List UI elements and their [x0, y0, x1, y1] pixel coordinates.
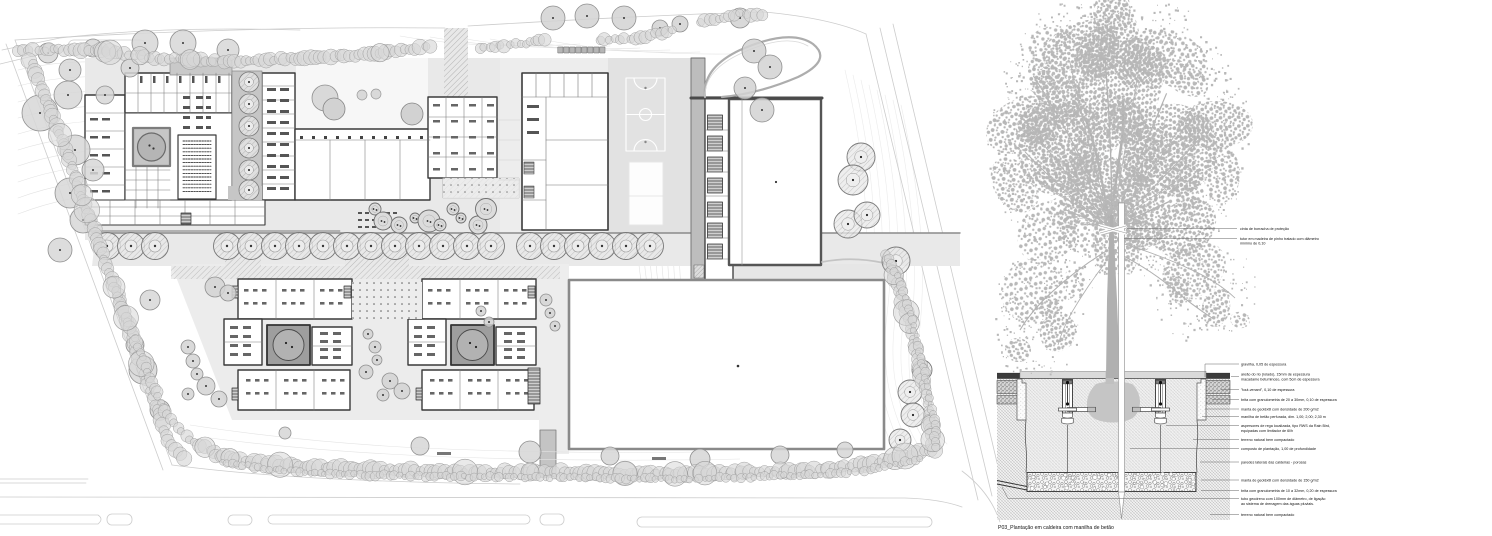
svg-text:gravilha, 0,05 de espessura: gravilha, 0,05 de espessura: [1241, 362, 1287, 366]
svg-text:brita com granulometria de 20: brita com granulometria de 20 a 30mm, 0,…: [1241, 398, 1338, 402]
svg-text:tutor em madeira de pinho trat: tutor em madeira de pinho tratado com di…: [1240, 237, 1319, 241]
svg-text:paredes laterais das caldeiras: paredes laterais das caldeiras - porosas: [1241, 460, 1307, 464]
svg-text:brita com granulometria de 10: brita com granulometria de 10 a 32mm, 0,…: [1241, 489, 1338, 493]
svg-text:ao sistema de drenagem das águ: ao sistema de drenagem das águas pluviai…: [1241, 502, 1314, 506]
svg-text:equipadas com limitador de 6l/: equipadas com limitador de 6l/h: [1241, 429, 1293, 433]
svg-text:manta de geotêxtil com densida: manta de geotêxtil com densidade de 200 …: [1241, 407, 1319, 411]
svg-text:composto de plantação, 1,00 de: composto de plantação, 1,00 de profundid…: [1241, 447, 1316, 451]
svg-text:macadame betuminoso, com 5cm d: macadame betuminoso, com 5cm de espessur…: [1241, 377, 1320, 381]
svg-text:aspersores de rega localizada,: aspersores de rega localizada, tipo RWS …: [1241, 424, 1330, 428]
svg-text:manta de geotêxtil com densida: manta de geotêxtil com densidade de 150 …: [1241, 478, 1319, 482]
svg-text:manilha de betão perfurada, di: manilha de betão perfurada, dim. 1,00; 2…: [1241, 415, 1326, 419]
svg-text:areão do rio (rolado), 15mm de: areão do rio (rolado), 15mm de espessura: [1241, 373, 1311, 377]
svg-text:"tout-venant", 0,10 de espessu: "tout-venant", 0,10 de espessura: [1241, 388, 1295, 392]
svg-text:mínimo de 0,10: mínimo de 0,10: [1240, 242, 1265, 246]
svg-text:P03_Plantação em caldeira com: P03_Plantação em caldeira com manilha de…: [998, 525, 1114, 531]
svg-text:terreno natural bem compactado: terreno natural bem compactado: [1241, 513, 1294, 517]
svg-text:cinta de borracha de proteção: cinta de borracha de proteção: [1240, 227, 1289, 231]
svg-text:tubo geodreno com 100mm de diâ: tubo geodreno com 100mm de diâmetro, de …: [1241, 497, 1325, 501]
svg-text:terreno natural bem compactado: terreno natural bem compactado: [1241, 438, 1294, 442]
